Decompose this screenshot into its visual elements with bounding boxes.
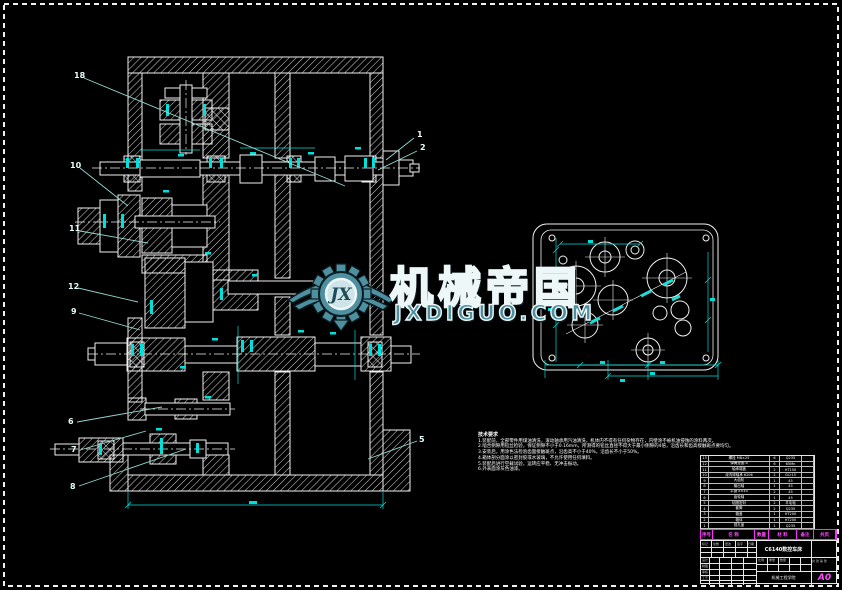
technical-notes: 技术要求 1.装配前，全部零件用煤油清洗，滚动轴承用汽油清洗，机体内不得有任何杂… [478, 433, 696, 473]
label-date: 日期 [748, 542, 754, 546]
label-sign: 签字 [737, 542, 743, 546]
note-line: 6.外表面涂灰色油漆。 [478, 467, 696, 473]
bom-table: 13螺栓 M8×256Q23512弹簧垫圈 8665Mn11轴承端盖2HT150… [700, 455, 815, 529]
balloon-7: 7 [71, 445, 77, 454]
bom-header-page: 共页 [814, 530, 836, 539]
balloon-1: 1 [417, 130, 423, 139]
label-change: 更改 [725, 542, 731, 546]
balloon-6: 6 [68, 417, 74, 426]
label-draft: 制图 [702, 564, 708, 568]
balloon-8: 8 [70, 482, 76, 491]
sheet-size: A0 [812, 572, 837, 584]
bom-header-material: 材 料 [769, 530, 797, 539]
bom-header-row: 序号 名 称 数量 材 料 备注 共页 [700, 529, 837, 540]
balloon-11: 11 [69, 224, 81, 233]
gear: JX [311, 264, 371, 331]
label-process: 工艺 [702, 576, 708, 580]
balloon-18: 18 [74, 71, 86, 80]
bom-header-no: 序号 [701, 530, 713, 539]
title-block: 标记 处数 更改 签字 日期 设计 制图 审核 工艺 比例 重量 数量 共 张 … [700, 540, 837, 584]
balloon-9: 9 [71, 307, 77, 316]
label-design: 设计 [702, 558, 708, 562]
label-check: 审核 [702, 570, 708, 574]
watermark-logo: JX [286, 252, 396, 334]
organization: 机械工程学院 [757, 571, 810, 584]
watermark-domain: JXDIGUO.COM [394, 301, 596, 325]
winged-gear-logo: JX [286, 252, 396, 334]
balloon-12: 12 [68, 282, 79, 291]
bom-header-remark: 备注 [797, 530, 814, 539]
logo-monogram: JX [327, 285, 352, 305]
bom-header-name: 名 称 [713, 530, 755, 539]
logo-tail [333, 320, 349, 331]
label-qty: 数量 [780, 558, 786, 562]
label-mark: 标记 [702, 542, 708, 546]
cad-sheet: 18 1 2 10 11 12 9 6 7 8 5 [0, 0, 842, 590]
label-sheets: 共 张 第 张 [812, 559, 827, 563]
label-count: 处数 [713, 542, 719, 546]
balloon-10: 10 [70, 161, 82, 170]
label-scale: 比例 [758, 558, 764, 562]
label-weight: 重量 [769, 558, 775, 562]
bom-header-qty: 数量 [755, 530, 769, 539]
balloon-5: 5 [419, 435, 425, 444]
drawing-title: C6140数控车床 [757, 542, 810, 556]
balloon-2: 2 [420, 143, 426, 152]
